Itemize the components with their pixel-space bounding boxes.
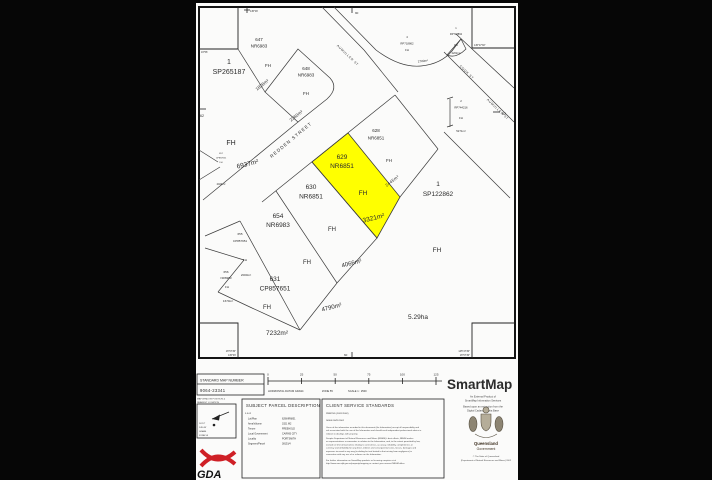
parcel-631-plan: CP857651 [260,286,291,293]
smartmap-document: REDDEN STREET AUMULLER ST COOK ST AUMULL… [0,0,712,480]
parcel-647-lot: 647 [255,37,263,42]
corner-bottom-left-coord-1: 16°57'30" [226,350,236,353]
corner-top-left-coord: 145°46' [250,10,259,13]
gda-label: GDA [197,469,222,480]
parcel-sp122862-plan: SP122862 [423,191,454,198]
client-para-line: Users of the information recorded in thi… [326,426,420,429]
parcel-rp718862b-fh: FH [454,43,458,47]
edge-bottom-60: 60 [344,353,348,357]
window-note-2: NEAREST LOCATION [197,401,219,404]
parcel-628-fh: FH [386,158,392,163]
parcel-rp744216-plan: RP744216 [454,106,468,110]
subject-field-label: Local Government [248,433,268,436]
brand-tagline-1: An External Product of [470,395,496,399]
edge-right-62: 62 [502,112,506,116]
parcel-629-fh: FH [359,190,368,197]
parcel-630-fh: FH [328,227,336,233]
scale-tick-3: 75 [367,373,371,377]
subject-code: 5.5.02 [245,413,252,415]
client-para-line: exclude or limit all warranties relating… [326,443,413,446]
parcel-sp265187-lot: 1 [227,59,231,66]
parcel-rp718862b-plan: RP718862 [450,32,463,36]
parcel-rp718862a-fh: FH [405,48,409,52]
subject-field-value: 3321 M2 [282,423,292,426]
north-box-line-4: ZONE 55 [199,435,209,437]
north-box-line-1: 16°57' [199,423,206,425]
scale-tick-4: 100 [400,373,405,377]
parcel-657-plan: CP857651 [216,158,227,160]
client-para-line: Despite Department of Natural Resources … [326,437,414,440]
parcel-656-plan: NR6983 [220,276,231,280]
client-title: CLIENT SERVICE STANDARDS [326,403,394,408]
client-printed: PRINTED (20/11/2002) [326,413,349,415]
corner-bottom-right-coord-1: 145°47'30" [458,350,470,353]
parcel-655-fh: FH [243,258,247,262]
subject-field-value: 38151/4 [282,443,291,446]
scale-ratio: SCALE 1 : 2500 [348,389,367,393]
area-2000: 2000m² [241,273,251,277]
scale-tick-5: 125 [433,373,438,377]
parcel-631-lot: 631 [270,276,281,283]
subject-field-label: Lot/Plan [248,418,257,421]
area-2024: 2024m² [217,182,226,186]
parcel-sp122862-fh: FH [433,247,442,254]
parcel-630-plan: NR6851 [299,194,323,201]
client-para-line: connection with any use of or reliance o… [326,453,382,456]
crest-copyright-2: (Department of Natural Resources and Min… [461,459,512,462]
window-note-1: MAP WINDOW POSITION & [197,398,226,401]
area-5271: 5271m² [456,129,466,133]
map-number-value: 9064-23341 [200,388,226,393]
crest-text-government: Government [477,447,496,451]
client-para-line: risk associated with the use of the Info… [326,429,422,432]
corner-top-right-coord: 145°47'30" [474,44,486,47]
parcel-648-lot: 648 [302,66,310,71]
subject-field-label: Locality [248,438,257,441]
area-529ha: 5.29ha [408,314,428,321]
crest-copyright-1: © The State of Queensland [473,455,500,458]
subject-field-label: Area/Volume [248,423,262,426]
area-2202: 2202m² [452,51,461,55]
area-1670: 1670m² [223,299,233,303]
parcel-sp265187-plan: SP265187 [213,69,246,76]
client-para-line: For further information on SmartMap prod… [326,459,396,462]
subject-field-value: 629/NR6851 [282,418,296,421]
parcel-rp718862a-plan: RP718862 [400,42,414,46]
north-box-line-3: GDA94 [199,430,207,433]
crest-text-queensland: Queensland [474,441,498,446]
corner-bottom-right-coord-2: 16°57'30" [460,354,470,357]
parcel-656-lot: 656 [223,270,228,274]
subject-field-label: Tenure [248,428,256,431]
parcel-655-plan: CP857651 [233,239,248,243]
brand-tagline-3: Based upon an extraction from the [463,405,503,409]
scale-datum: HORIZONTAL DATUM GDA94 [268,389,304,393]
corner-bottom-left-coord-2: 145°46' [228,354,237,357]
parcel-647-fh: FH [265,63,271,68]
parcel-sp265187-fh: FH [226,140,235,147]
parcel-629-lot: 629 [337,154,348,161]
edge-top-90: 90 [355,11,359,15]
subject-field-label: Segment/Parcel [248,443,265,446]
scale-tick-1: 25 [300,373,304,377]
subject-field-value: FREEHOLD [282,428,295,431]
client-para-line: currency and all liability for any direc… [326,447,417,450]
parcel-647-plan: NR6983 [251,44,268,49]
parcel-654-fh: FH [303,260,311,266]
parcel-631-fh: FH [263,305,271,311]
edge-left-coord: 16°56' [201,51,208,54]
area-7232: 7232m² [266,330,289,337]
parcel-648-plan: NR6983 [298,73,315,78]
scale-tick-2: 50 [334,373,338,377]
map-sheet-svg: REDDEN STREET AUMULLER ST COOK ST AUMULL… [0,0,712,480]
scale-zone: ZONE 55 [322,389,333,393]
client-para-line: relation to dealings with property. [326,432,358,435]
parcel-648-fh: FH [303,91,309,96]
origin-dot-icon [213,424,216,427]
subject-title: SUBJECT PARCEL DESCRIPTION [246,403,320,408]
smartmap-wordmark: SmartMap [447,377,512,392]
parcel-657-fh: FH [220,162,223,164]
parcel-rp744216-fh: FH [459,116,463,120]
parcel-656-fh: FH [225,285,229,289]
parcel-628-lot: 628 [372,128,380,133]
client-para-line: http://www.nrm.qld.gov.au/property/mappi… [326,462,405,465]
client-para-line: no representations or warranties in rela… [326,440,421,443]
subject-field-value: CAIRNS CITY [282,433,298,436]
map-number-title: STANDARD MAP NUMBER [200,379,244,383]
parcel-629-plan: NR6851 [330,163,354,170]
parcel-sp122862-lot: 1 [436,181,440,188]
edge-left-62: 62 [200,114,204,118]
parcel-628-plan: NR6851 [368,136,385,141]
parcel-654-lot: 654 [273,213,284,220]
subject-field-value: PORTSMITH [282,438,296,441]
parcel-654-plan: NR6983 [266,222,290,229]
parcel-655-lot: 655 [237,232,242,236]
parcel-630-lot: 630 [306,184,317,191]
client-issue: ISSUE 30/11/2002 [326,420,345,422]
north-box-line-2: 145°46' [199,427,207,429]
brand-tagline-2: SmartMap Information Services [465,399,502,403]
client-para-line: expenses incurred in any way (including … [326,450,413,453]
